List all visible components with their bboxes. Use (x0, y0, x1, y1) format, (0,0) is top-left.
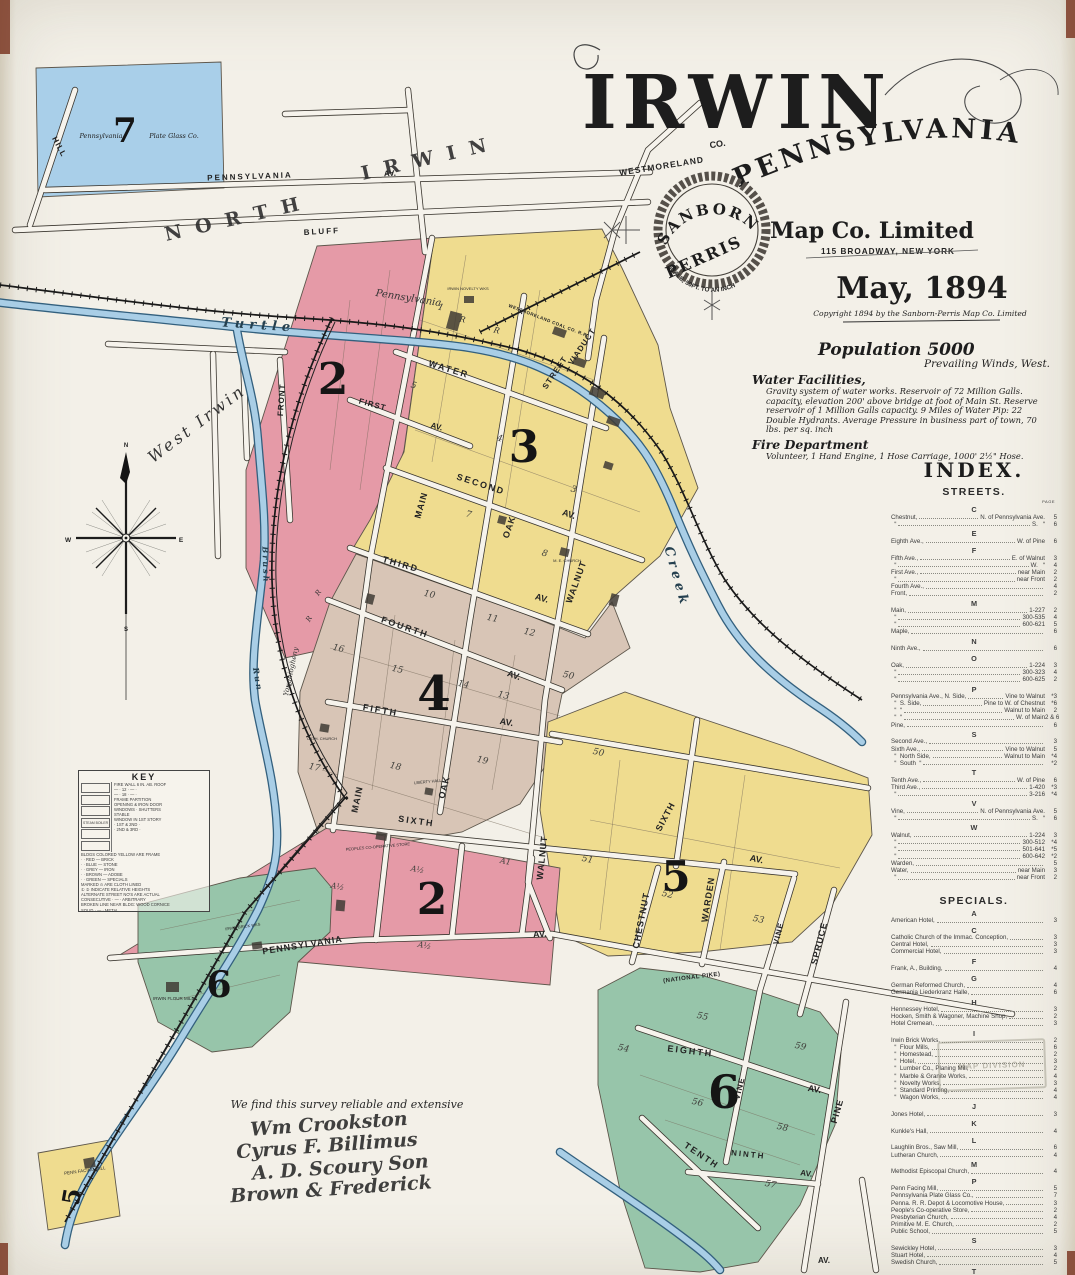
index-row: “600-6252 (891, 676, 1057, 683)
key-symbol (81, 795, 110, 805)
surveyor-signatures: Wm CrookstonCyrus F. BillimusA. D. Scour… (222, 1111, 472, 1199)
compass-e: E (179, 537, 184, 544)
index-row: Penna. R. R. Depot & Locomotive House,3 (891, 1200, 1057, 1207)
index-row: Front,2 (891, 590, 1057, 597)
compass-s: S (124, 627, 128, 633)
map-label: BLUFF (304, 226, 341, 237)
key-symbol-column: STEAM BOILER (81, 782, 112, 852)
index-row: Fourth Ave.,4 (891, 583, 1057, 590)
index-letter: K (891, 1120, 1057, 1127)
index-row: Warden,5 (891, 860, 1057, 867)
index-letter: E (891, 530, 1057, 537)
map-label: AV. (800, 1168, 813, 1179)
index-letter: I (891, 1030, 1057, 1037)
index-row: Laughlin Bros., Saw Mill,6 (891, 1144, 1057, 1151)
index-letter: S (891, 731, 1057, 738)
index-letter: C (891, 506, 1057, 513)
key-rows: FIRE WALL 6 IN. AB. ROOF— · 12 · — ·— · … (114, 782, 166, 852)
district-6-east (598, 968, 842, 1272)
index-row: Eighth Ave.,W. of Pine6 (891, 538, 1057, 545)
index-row: Water,near Main3 (891, 867, 1057, 874)
districts (36, 62, 872, 1272)
index-row: Jones Hotel,3 (891, 1111, 1057, 1118)
section-number-3: 3 (509, 422, 540, 473)
index-row: Public School,5 (891, 1228, 1057, 1235)
title-block: IRWIN WESTMORELAND CO. PENNSYLVANIA SANB… (574, 45, 1070, 322)
key-panel: KEY STEAM BOILER FIRE WALL 6 IN. AB. ROO… (78, 770, 210, 912)
index-letter: S (891, 1237, 1057, 1244)
index-row: Oak,1-2243 (891, 662, 1057, 669)
stamp-text: MAP DIVISION (958, 1059, 1025, 1070)
index-row: Penn Facing Mill,5 (891, 1185, 1057, 1192)
library-stamp: MAP DIVISION (937, 1038, 1047, 1092)
scan-mark (0, 1243, 8, 1275)
index-letter: M (891, 600, 1057, 607)
map-label: IRWIN FLOUR MILLS (153, 996, 197, 1001)
index-row: German Reformed Church,4 (891, 982, 1057, 989)
key-title: KEY (81, 772, 207, 782)
section-number-2: 2 (417, 874, 448, 925)
index-row: Frank, A., Building,4 (891, 965, 1057, 972)
compass-n: N (124, 443, 128, 449)
publisher: Map Co. Limited (770, 218, 974, 244)
key-row: · 2ND & 3RD · (114, 827, 166, 832)
label-turtle: Turtle (221, 315, 296, 335)
index-row: Pennsylvania Plate Glass Co.,7 (891, 1192, 1057, 1199)
index-row: Germania Liederkranz Halle,6 (891, 989, 1057, 996)
index-row: Hocken, Smith & Wagoner, Machine Shop,2 (891, 1013, 1057, 1020)
map-label: IRWIN NOVELTY WKS (447, 286, 489, 291)
index-row: Walnut,1-2243 (891, 832, 1057, 839)
index-row: Tenth Ave.,W. of Pine6 (891, 777, 1057, 784)
section-number-6: 6 (206, 964, 231, 1006)
section-number-6: 6 (708, 1065, 740, 1119)
map-label: AV. (384, 169, 396, 178)
index-row: Vine,N. of Pennsylvania Ave.5 (891, 808, 1057, 815)
scan-mark (1067, 1251, 1075, 1275)
index-letter: L (891, 1137, 1057, 1144)
index-row: Chestnut,N. of Pennsylvania Ave.5 (891, 514, 1057, 521)
streets-index-list: CChestnut,N. of Pennsylvania Ave.5 “S. “… (891, 506, 1057, 881)
section-number-4: 4 (417, 666, 450, 722)
water-facilities-title: Water Facilities, (752, 372, 1054, 387)
index-row: First Ave.,near Main2 (891, 569, 1057, 576)
key-rows-lower: BLDGS COLORED YELLOW ARE FRAME· · RED — … (81, 852, 207, 913)
index-letter: J (891, 1103, 1057, 1110)
index-row: Stuart Hotel,4 (891, 1252, 1057, 1259)
index-letter: T (891, 769, 1057, 776)
index-row: “600-642*2 (891, 853, 1057, 860)
label-brush-run: Brush (260, 545, 271, 583)
index-row: “300-3234 (891, 669, 1057, 676)
index-row: “S. “6 (891, 521, 1057, 528)
label-creek: Creek (661, 545, 693, 609)
index-letter: T (891, 1268, 1057, 1275)
page-column-label: PAGE (891, 499, 1055, 504)
index-row: “600-6215 (891, 621, 1057, 628)
index-row: “near Front2 (891, 576, 1057, 583)
key-symbol (81, 806, 110, 816)
index-row: Hotel Cremean,3 (891, 1020, 1057, 1027)
index-row: “ S. Side,Pine to W. of Chestnut*6 (891, 700, 1057, 707)
label-west-irwin: West Irwin (144, 381, 249, 467)
index-row: Commercial Hotel,3 (891, 948, 1057, 955)
index-letter: C (891, 927, 1057, 934)
index-letter: H (891, 999, 1057, 1006)
index-row: Main,1-2272 (891, 607, 1057, 614)
index-row: Presbyterian Church,4 (891, 1214, 1057, 1221)
index-row: Pine,6 (891, 722, 1057, 729)
index-row: “300-512*4 (891, 839, 1057, 846)
key-symbol (81, 841, 110, 851)
index-row: Methodist Episcopal Church,4 (891, 1168, 1057, 1175)
index-row: Ninth Ave.,6 (891, 645, 1057, 652)
fire-department-title: Fire Department (752, 437, 1054, 452)
index-row: American Hotel,3 (891, 917, 1057, 924)
index-row: “ “W. of Main2 & 6 (891, 714, 1057, 721)
index-row: Maple,6 (891, 628, 1057, 635)
index-letter: F (891, 547, 1057, 554)
index-row: “S. “6 (891, 815, 1057, 822)
index-row: Fifth Ave.,E. of Walnut3 (891, 555, 1057, 562)
index-letter: A (891, 910, 1057, 917)
index-letter: P (891, 686, 1057, 693)
specials-index-list: AAmerican Hotel,3CCatholic Church of the… (891, 910, 1057, 1275)
index-row: Catholic Church of the Immac. Conception… (891, 934, 1057, 941)
index-row: “ South “*2 (891, 760, 1057, 767)
map-label: CATH. CHURCH (307, 736, 337, 741)
map-label: AV. (533, 929, 547, 940)
index-row: Pennsylvania Ave., N. Side,Vine to Walnu… (891, 693, 1057, 700)
title-county: WESTMORELAND (618, 154, 704, 177)
index-row: Second Ave.,3 (891, 738, 1057, 745)
map-date: May, 1894 (836, 271, 1008, 306)
index-letter: P (891, 1178, 1057, 1185)
publisher-address: 115 BROADWAY, NEW YORK (821, 247, 955, 256)
section-number-2: 2 (318, 354, 349, 405)
north-arrow (120, 452, 130, 484)
index-letter: V (891, 800, 1057, 807)
key-symbol (81, 829, 110, 839)
index-letter: M (891, 1161, 1057, 1168)
scan-mark (1066, 0, 1075, 38)
index-letter: N (891, 638, 1057, 645)
specials-heading: SPECIALS. (891, 895, 1057, 907)
population: Population 5000 (818, 340, 1054, 360)
index-row: Swedish Church,5 (891, 1259, 1057, 1266)
title-co: CO. (709, 138, 726, 150)
key-row: SOLID · — · METAL (81, 908, 207, 913)
section-number-7: 7 (113, 111, 137, 151)
index-row: Hennessey Hotel,3 (891, 1006, 1057, 1013)
scan-mark (0, 0, 10, 54)
index-row: Sixth Ave.,Vine to Walnut5 (891, 746, 1057, 753)
index-row: People's Co-operative Store,2 (891, 1207, 1057, 1214)
map-label: M. E. CHURCH (553, 558, 581, 563)
map-label: Plate Glass Co. (148, 132, 199, 140)
map-label: AV. (818, 1256, 830, 1265)
key-symbol-steam-boiler: STEAM BOILER (81, 818, 110, 828)
statistics-block: Population 5000 Prevailing Winds, West. … (752, 340, 1054, 464)
index-row: Primitive M. E. Church,2 (891, 1221, 1057, 1228)
index-letter: W (891, 824, 1057, 831)
compass-w: W (65, 537, 72, 544)
index-row: “near Front2 (891, 874, 1057, 881)
index-row: Central Hotel,3 (891, 941, 1057, 948)
key-symbol (81, 783, 110, 793)
index-row: “ Wagon Works,4 (891, 1094, 1057, 1101)
index-row: “501-641*5 (891, 846, 1057, 853)
badge-sanborn: SANBORN (653, 200, 763, 248)
index-row: Lutheran Church,4 (891, 1152, 1057, 1159)
signature-block: We find this survey reliable and extensi… (222, 1098, 472, 1199)
index-panel: INDEX. STREETS. PAGE CChestnut,N. of Pen… (891, 458, 1057, 1275)
index-row: Third Ave.,1-420*3 (891, 784, 1057, 791)
index-letter: F (891, 958, 1057, 965)
index-row: “3-216*4 (891, 791, 1057, 798)
index-row: “W. “4 (891, 562, 1057, 569)
index-row: “300-5354 (891, 614, 1057, 621)
index-row: “ “Walnut to Main2 (891, 707, 1057, 714)
index-title: INDEX. (891, 458, 1057, 482)
index-row: Sewickley Hotel,3 (891, 1245, 1057, 1252)
water-facilities-text: Gravity system of water works. Reservoir… (766, 387, 1054, 435)
index-letter: G (891, 975, 1057, 982)
compass-rose (76, 452, 176, 700)
map-label: SPRUCE (809, 921, 829, 966)
streets-heading: STREETS. (891, 486, 1057, 498)
sanborn-map-sheet: IRWIN WESTMORELAND CO. PENNSYLVANIA SANB… (0, 0, 1075, 1275)
index-row: “ North Side,Walnut to Main*4 (891, 753, 1057, 760)
index-row: Kunkle's Hall,4 (891, 1128, 1057, 1135)
index-letter: O (891, 655, 1057, 662)
copyright-line: Copyright 1894 by the Sanborn-Perris Map… (813, 309, 1027, 318)
